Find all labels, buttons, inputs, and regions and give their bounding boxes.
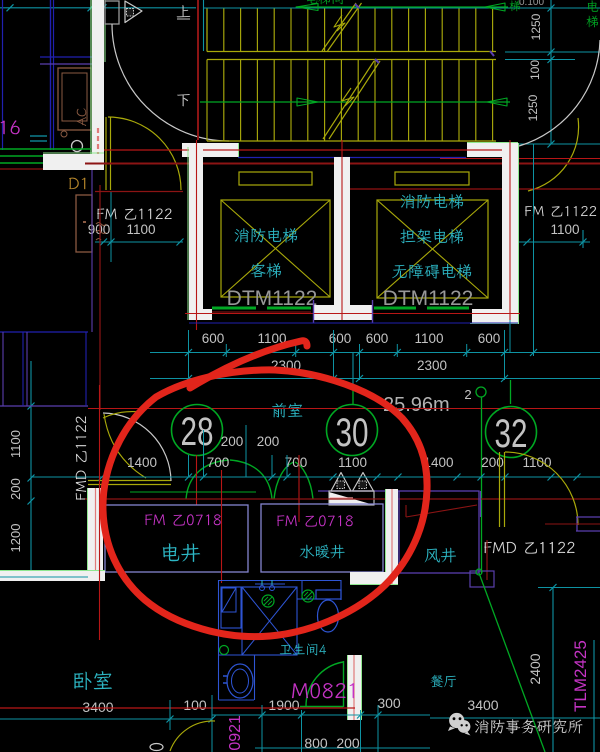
svg-text:200: 200: [336, 735, 360, 751]
svg-text:600: 600: [202, 331, 225, 346]
svg-text:1100: 1100: [338, 455, 367, 470]
svg-text:600: 600: [478, 331, 501, 346]
svg-text:200: 200: [481, 455, 504, 470]
svg-text:2400: 2400: [527, 653, 543, 684]
svg-text:M0921: M0921: [227, 715, 244, 752]
svg-text:100: 100: [528, 60, 542, 80]
svg-text:32: 32: [495, 412, 528, 456]
svg-text:200: 200: [8, 478, 23, 500]
svg-text:1400: 1400: [127, 455, 157, 470]
svg-text:1100: 1100: [8, 430, 23, 458]
svg-text:30: 30: [336, 411, 369, 455]
svg-text:2300: 2300: [417, 358, 447, 373]
svg-text:600: 600: [366, 331, 389, 346]
svg-text:1900: 1900: [268, 697, 299, 713]
svg-text:100: 100: [183, 697, 207, 713]
svg-text:1250: 1250: [529, 13, 543, 40]
svg-text:1100: 1100: [522, 455, 551, 470]
svg-text:1100: 1100: [126, 222, 155, 237]
svg-text:900: 900: [88, 222, 111, 237]
svg-text:300: 300: [377, 695, 401, 711]
svg-text:3400: 3400: [82, 699, 113, 715]
svg-text:1200: 1200: [8, 524, 23, 553]
svg-text:600: 600: [329, 331, 352, 346]
svg-text:800: 800: [304, 735, 328, 751]
svg-text:2: 2: [464, 387, 471, 402]
svg-text:700: 700: [207, 455, 230, 470]
svg-text:200: 200: [257, 434, 280, 449]
svg-text:TLM2425: TLM2425: [571, 640, 590, 712]
svg-text:200: 200: [221, 434, 244, 449]
svg-text:700: 700: [285, 455, 308, 470]
svg-text:1250: 1250: [526, 94, 540, 121]
svg-text:3400: 3400: [467, 697, 498, 713]
svg-text:1100: 1100: [550, 222, 579, 237]
svg-text:1100: 1100: [414, 331, 443, 346]
svg-text:0.100: 0.100: [519, 0, 544, 8]
svg-text:28: 28: [181, 410, 214, 454]
